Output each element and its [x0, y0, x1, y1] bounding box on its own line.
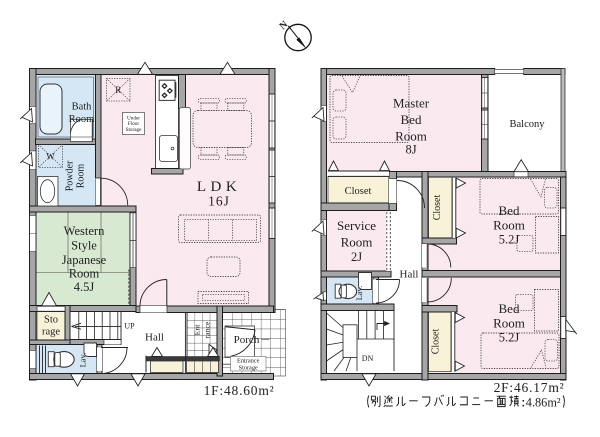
svg-text:Closet: Closet — [431, 329, 442, 355]
svg-text:Lav.: Lav. — [354, 286, 364, 301]
svg-text:Storage: Storage — [126, 127, 143, 133]
svg-text:Storage: Storage — [239, 364, 258, 371]
svg-text:8J: 8J — [405, 143, 416, 157]
svg-text:Hall: Hall — [400, 269, 419, 281]
svg-text:Powder: Powder — [65, 160, 76, 191]
svg-text:Room: Room — [493, 316, 525, 331]
svg-text:2J: 2J — [351, 250, 362, 264]
svg-text:Bed: Bed — [499, 203, 520, 218]
svg-text:Room: Room — [493, 218, 525, 233]
svg-text:Bath: Bath — [72, 102, 93, 113]
svg-text:Sto: Sto — [44, 315, 58, 326]
svg-text:Room: Room — [341, 235, 373, 250]
svg-text:rance: rance — [202, 321, 211, 338]
svg-text:rage: rage — [42, 327, 60, 338]
svg-text:Bed: Bed — [499, 301, 520, 316]
svg-text:2F:46.17m²: 2F:46.17m² — [494, 380, 565, 395]
svg-text:DN: DN — [362, 354, 374, 363]
svg-text:Japanese: Japanese — [62, 253, 107, 267]
svg-text:Western: Western — [64, 224, 105, 238]
svg-text:UP: UP — [124, 322, 135, 331]
svg-text:Room: Room — [69, 114, 95, 125]
svg-text:1F:48.60m²: 1F:48.60m² — [204, 383, 275, 398]
svg-text:Room: Room — [76, 164, 87, 189]
svg-text:Porch: Porch — [234, 334, 260, 346]
svg-text:R: R — [115, 85, 121, 95]
svg-text:Style: Style — [71, 239, 97, 253]
svg-text:16J: 16J — [208, 194, 230, 209]
svg-text:Balcony: Balcony — [510, 119, 546, 130]
svg-text:Bed: Bed — [401, 112, 422, 127]
svg-text:Hall: Hall — [145, 332, 164, 344]
svg-text:5.2J: 5.2J — [499, 331, 520, 345]
svg-text:Closet: Closet — [345, 186, 372, 197]
svg-text:4.86m²: 4.86m² — [526, 395, 561, 409]
svg-text:W: W — [46, 152, 55, 162]
svg-text:4.5J: 4.5J — [74, 280, 95, 294]
svg-text:Room: Room — [69, 267, 100, 281]
svg-text:Ent: Ent — [193, 324, 202, 336]
svg-text:Room: Room — [395, 129, 427, 144]
svg-text:Master: Master — [393, 96, 430, 111]
svg-text:5.2J: 5.2J — [499, 233, 520, 247]
svg-text:Service: Service — [337, 218, 376, 233]
svg-text:Lav.: Lav. — [78, 353, 88, 368]
svg-text:Closet: Closet — [432, 195, 443, 221]
